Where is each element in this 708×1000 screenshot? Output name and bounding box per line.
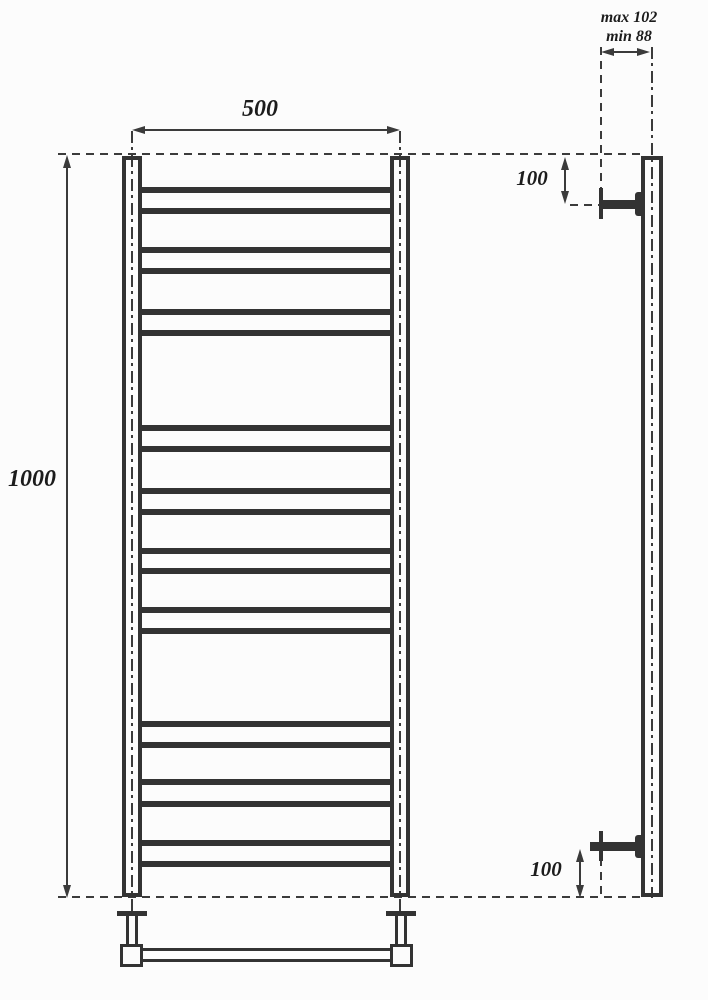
bottom-offset-label: 100 xyxy=(520,859,572,880)
top-bracket-arm xyxy=(603,200,637,209)
bottom-bracket-nut xyxy=(635,835,644,858)
depth-dimension-labels: max 102 min 88 xyxy=(590,8,668,46)
bottom-offset-arrow-down-icon xyxy=(576,885,584,898)
side-view: max 102 min 88 100 100 xyxy=(0,0,708,1000)
wall-line-bottom xyxy=(600,858,602,898)
bottom-offset-dim-line xyxy=(579,861,581,886)
side-tube xyxy=(641,156,663,897)
top-offset-label: 100 xyxy=(506,168,558,189)
wall-line-top xyxy=(600,47,602,189)
top-offset-extension-line xyxy=(570,204,600,206)
depth-min-label: min 88 xyxy=(590,27,668,46)
top-bracket-nut xyxy=(635,192,644,216)
depth-dim-line xyxy=(613,51,638,53)
towel-rail-drawing: 1000 500 xyxy=(0,0,708,1000)
bottom-bracket-arm xyxy=(590,842,637,851)
depth-dim-arrow-right-icon xyxy=(637,48,650,56)
depth-max-label: max 102 xyxy=(590,8,668,27)
top-offset-arrow-down-icon xyxy=(561,191,569,204)
